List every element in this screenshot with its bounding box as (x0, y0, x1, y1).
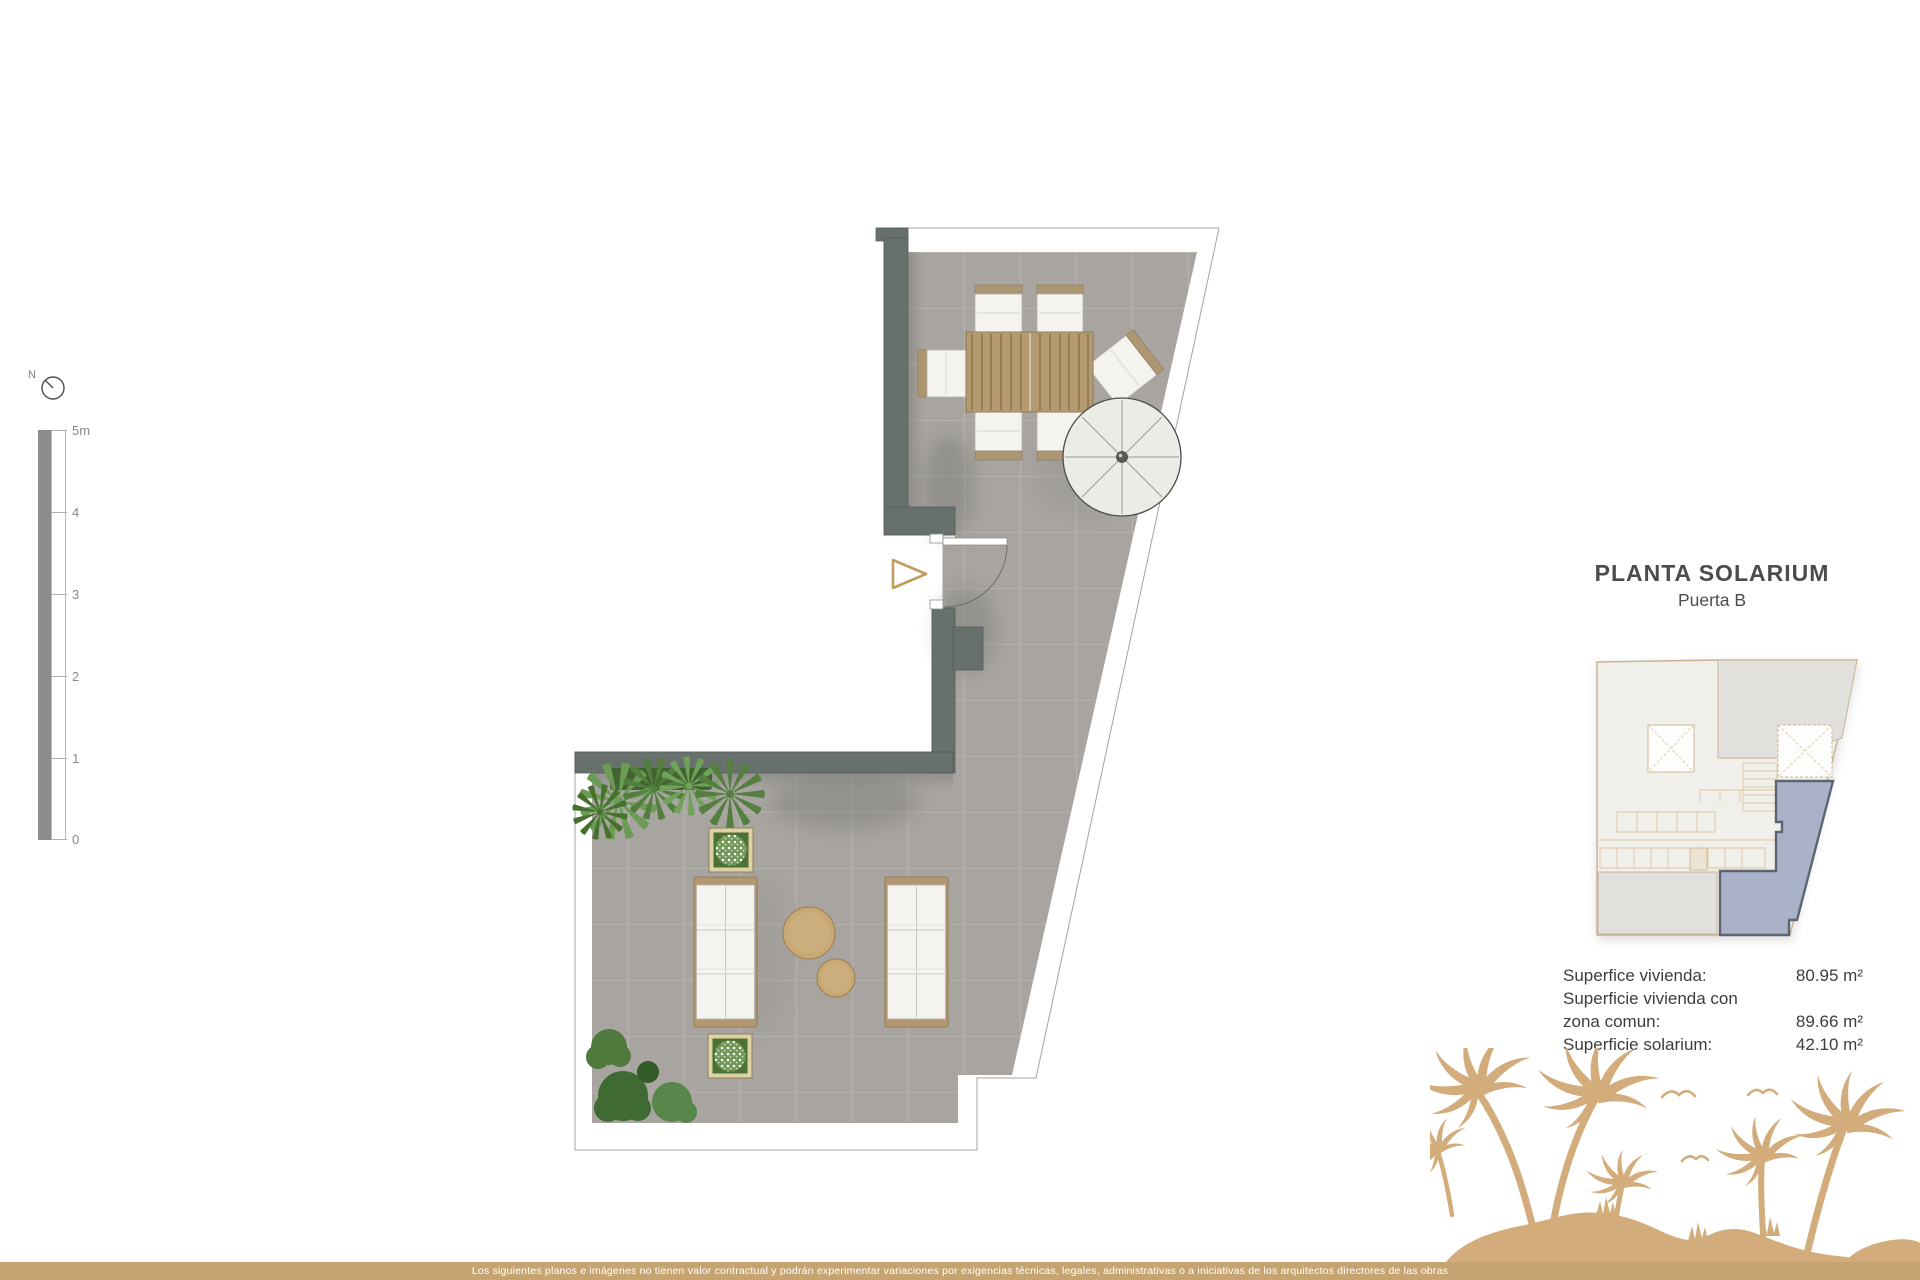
scale-bar-column (51, 430, 66, 840)
palm-silhouette (1430, 1048, 1920, 1262)
roof-area-bottom (1598, 872, 1717, 934)
scale-label: 0 (72, 832, 79, 847)
area-row: Superficie vivienda con (1563, 987, 1863, 1010)
scale-tick (51, 512, 67, 513)
dining-table (966, 332, 1093, 412)
scale-bar-solid (38, 430, 51, 840)
scale-tick (51, 594, 67, 595)
door-jamb (930, 534, 943, 543)
door-jamb (930, 600, 943, 609)
area-label: zona comun: (1563, 1010, 1660, 1033)
dining-chair (975, 285, 1022, 334)
grass-tuft (1688, 1222, 1708, 1241)
key-plan (1585, 650, 1875, 950)
scale-label: 5m (72, 423, 90, 438)
elevator-shaft (1648, 725, 1694, 772)
compass-needle (45, 380, 53, 388)
area-table: Superfice vivienda: 80.95 m² Superficie … (1563, 964, 1863, 1056)
grass-tuft (1596, 1197, 1616, 1216)
plan-sheet-page: N 5m 4 3 2 1 0 (0, 0, 1920, 1280)
area-row: zona comun: 89.66 m² (1563, 1010, 1863, 1033)
scale-label: 2 (72, 669, 79, 684)
page-subtitle: Puerta B (1562, 590, 1862, 611)
sun-lounger-pair (885, 877, 948, 1027)
parasol-umbrella (1063, 398, 1181, 516)
scale-tick (51, 430, 67, 431)
scale-label: 1 (72, 751, 79, 766)
dining-chair (975, 410, 1022, 460)
scale-label: 3 (72, 587, 79, 602)
compass-icon: N (24, 364, 72, 406)
sun-lounger-pair (694, 877, 757, 1027)
sand-mound (1845, 1239, 1920, 1262)
page-title: PLANTA SOLARIUM (1562, 560, 1862, 587)
area-value: 80.95 m² (1796, 964, 1863, 987)
planter (709, 828, 753, 872)
compass-north-label: N (28, 369, 36, 381)
disclaimer-text: Los siguientes planos e imágenes no tien… (472, 1265, 1448, 1277)
scale-label: 4 (72, 505, 79, 520)
scale-tick (51, 839, 67, 840)
scale-tick (51, 758, 67, 759)
footer-bar: Los siguientes planos e imágenes no tien… (0, 1262, 1920, 1280)
scale-bar: 5m 4 3 2 1 0 (38, 430, 98, 842)
dining-chair (1037, 285, 1083, 334)
door-leaf (943, 538, 1007, 545)
entry-arrow-icon (893, 560, 926, 588)
area-label: Superficie vivienda con (1563, 987, 1738, 1010)
area-value: 89.66 m² (1796, 1010, 1863, 1033)
area-label: Superfice vivienda: (1563, 964, 1707, 987)
dining-chair (918, 350, 967, 397)
title-block: PLANTA SOLARIUM Puerta B (1562, 560, 1862, 611)
solarium-floor-plan (560, 215, 1250, 1165)
elevator-shaft (1778, 725, 1832, 777)
scale-tick (51, 676, 67, 677)
planter (708, 1034, 752, 1078)
area-row: Superfice vivienda: 80.95 m² (1563, 964, 1863, 987)
